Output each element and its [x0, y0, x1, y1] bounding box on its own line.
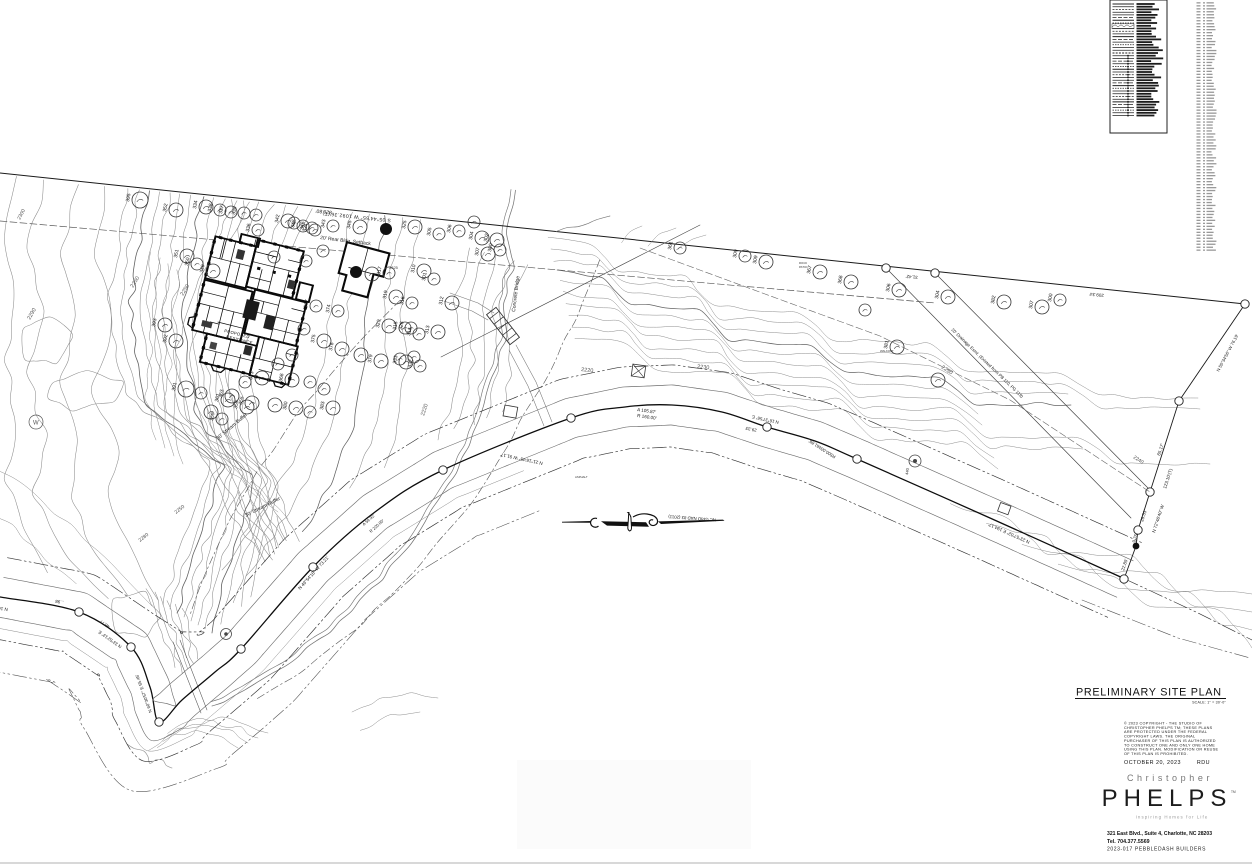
svg-text:2220: 2220	[581, 367, 594, 374]
svg-text:Tel. 704.377.5569: Tel. 704.377.5569	[1107, 839, 1150, 845]
svg-text:Christopher: Christopher	[1127, 773, 1213, 783]
svg-text:Inspiring Homes for Life: Inspiring Homes for Life	[1136, 815, 1209, 820]
svg-text:ARE PROTECTED UNDER THE FEDERA: ARE PROTECTED UNDER THE FEDERAL	[1124, 730, 1207, 734]
svg-text:USING THIS PLAN. MODIFICATION: USING THIS PLAN. MODIFICATION OR REUSE	[1124, 748, 1219, 752]
svg-text:321 East Blvd., Suite 4, Charl: 321 East Blvd., Suite 4, Charlotte, NC 2…	[1107, 831, 1212, 837]
svg-text:OF THIS PLAN IS PROHIBITED.: OF THIS PLAN IS PROHIBITED.	[1124, 752, 1188, 756]
svg-text:W: W	[33, 421, 39, 427]
svg-text:PHELPS: PHELPS	[1102, 785, 1233, 812]
svg-text:ASPHALT: ASPHALT	[575, 475, 588, 479]
svg-text:TM: TM	[1231, 790, 1236, 794]
svg-text:PRELIMINARY SITE PLAN: PRELIMINARY SITE PLAN	[1076, 687, 1222, 699]
svg-text:OCTOBER 20, 2023: OCTOBER 20, 2023	[1124, 760, 1181, 766]
svg-text:© 2023 COPYRIGHT - THE STUDIO: © 2023 COPYRIGHT - THE STUDIO OF	[1124, 722, 1202, 726]
svg-text:RDU: RDU	[1197, 760, 1210, 766]
svg-text:WALKOUT: WALKOUT	[880, 349, 894, 353]
svg-text:PURCHASER OF THIS PLAN IS AUTH: PURCHASER OF THIS PLAN IS AUTHORIZED	[1124, 739, 1216, 743]
svg-text:PATIO: PATIO	[799, 265, 808, 269]
svg-text:2225: 2225	[389, 265, 399, 270]
svg-text:2023-017 PEBBLEDASH BUILDERS: 2023-017 PEBBLEDASH BUILDERS	[1107, 847, 1206, 853]
svg-text:2230: 2230	[697, 364, 710, 371]
svg-text:SCALE: 1" = 30'-0": SCALE: 1" = 30'-0"	[1192, 701, 1226, 705]
